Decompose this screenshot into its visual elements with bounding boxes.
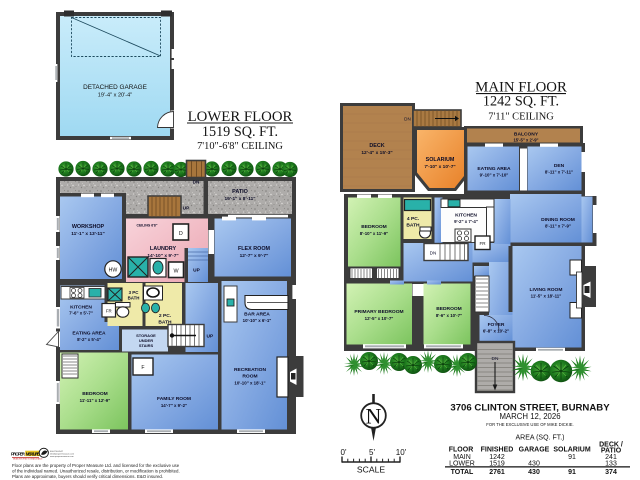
svg-text:PATIO: PATIO xyxy=(232,189,248,195)
svg-text:N: N xyxy=(366,404,382,429)
svg-text:FOYER: FOYER xyxy=(488,322,505,328)
svg-text:9'-10" x 7'-10": 9'-10" x 7'-10" xyxy=(480,173,509,178)
svg-text:8'-6" x 10'-7": 8'-6" x 10'-7" xyxy=(436,313,462,318)
svg-text:7'-6" x 5'-7": 7'-6" x 5'-7" xyxy=(69,311,93,316)
svg-text:KITCHEN: KITCHEN xyxy=(455,213,477,219)
svg-text:FAMILY ROOM: FAMILY ROOM xyxy=(157,396,191,402)
svg-text:DN: DN xyxy=(492,356,499,362)
svg-text:12'-4" x 15'-3": 12'-4" x 15'-3" xyxy=(361,150,392,156)
svg-text:1242 SQ. FT.: 1242 SQ. FT. xyxy=(483,94,559,110)
svg-text:10'-10" x 18'-1": 10'-10" x 18'-1" xyxy=(234,381,265,386)
svg-text:11'-1" x 13'-11": 11'-1" x 13'-11" xyxy=(71,231,105,237)
svg-text:9'-2" x 7'-4": 9'-2" x 7'-4" xyxy=(454,219,478,224)
svg-text:FLOOR: FLOOR xyxy=(449,446,474,453)
svg-text:WORKSHOP: WORKSHOP xyxy=(72,224,105,230)
svg-text:19'-4" x 20'-4": 19'-4" x 20'-4" xyxy=(98,93,132,99)
svg-text:12'-7" x 9'-7": 12'-7" x 9'-7" xyxy=(240,253,269,259)
svg-text:Plans are approximate, buyers: Plans are approximate, buyers should ver… xyxy=(12,474,163,479)
svg-text:MEASURE WHAT IS MEASURABLE: MEASURE WHAT IS MEASURABLE xyxy=(13,458,43,461)
svg-text:8'-10" x 11'-9": 8'-10" x 11'-9" xyxy=(360,231,388,236)
svg-text:F: F xyxy=(141,365,144,371)
svg-text:15'-5" x 2'-9": 15'-5" x 2'-9" xyxy=(513,138,538,143)
svg-text:BATH: BATH xyxy=(158,320,172,326)
svg-text:2761: 2761 xyxy=(489,469,505,476)
svg-text:6'-8" x 10'-2": 6'-8" x 10'-2" xyxy=(483,329,509,334)
svg-text:91: 91 xyxy=(568,454,576,461)
svg-text:430: 430 xyxy=(528,460,540,467)
svg-text:www.propermeasure.com: www.propermeasure.com xyxy=(50,455,74,458)
svg-text:DN: DN xyxy=(193,180,200,185)
svg-text:EATING AREA: EATING AREA xyxy=(477,166,511,172)
svg-text:ROOM: ROOM xyxy=(242,374,257,380)
svg-text:FR: FR xyxy=(479,241,486,246)
svg-text:HW: HW xyxy=(109,267,118,273)
svg-text:EATING AREA: EATING AREA xyxy=(72,331,106,337)
svg-text:SOLARIUM: SOLARIUM xyxy=(426,157,455,163)
svg-text:91: 91 xyxy=(568,469,576,476)
svg-text:CEILING 6'8": CEILING 6'8" xyxy=(137,224,158,228)
svg-text:UP: UP xyxy=(207,334,214,340)
svg-text:SOLARIUM: SOLARIUM xyxy=(553,446,591,453)
svg-text:3 PC: 3 PC xyxy=(129,290,140,295)
svg-text:FLEX ROOM: FLEX ROOM xyxy=(238,246,271,252)
svg-text:1519 SQ. FT.: 1519 SQ. FT. xyxy=(202,124,278,140)
svg-text:RECREATION: RECREATION xyxy=(234,367,266,373)
svg-text:10': 10' xyxy=(396,448,407,457)
svg-text:MEASURE: MEASURE xyxy=(26,452,40,457)
svg-text:LIVING ROOM: LIVING ROOM xyxy=(530,287,563,293)
svg-text:1519: 1519 xyxy=(489,460,505,467)
svg-text:BATH: BATH xyxy=(128,296,140,301)
svg-text:DECK: DECK xyxy=(369,143,384,149)
svg-text:14'-10" x 9'-7": 14'-10" x 9'-7" xyxy=(147,253,178,259)
svg-text:STAIRS: STAIRS xyxy=(139,343,154,348)
svg-text:Floor plans are the property o: Floor plans are the property of Proper M… xyxy=(12,463,180,468)
svg-text:8'-2" x 5'-4": 8'-2" x 5'-4" xyxy=(77,337,101,342)
svg-text:5': 5' xyxy=(369,448,375,457)
svg-text:0': 0' xyxy=(341,448,347,457)
svg-text:BEDROOM: BEDROOM xyxy=(436,306,462,312)
svg-text:BEDROOM: BEDROOM xyxy=(82,391,108,397)
svg-text:7'11" CEILING: 7'11" CEILING xyxy=(488,111,554,122)
svg-text:PROPER: PROPER xyxy=(11,452,26,457)
svg-text:TOTAL: TOTAL xyxy=(451,469,474,476)
svg-text:10'-10" x 6'-1": 10'-10" x 6'-1" xyxy=(243,318,272,323)
svg-text:UP: UP xyxy=(193,268,200,274)
svg-text:UP: UP xyxy=(183,206,190,212)
svg-text:FINISHED: FINISHED xyxy=(481,446,514,453)
svg-text:FOR THE EXCLUSIVE USE OF MIKE: FOR THE EXCLUSIVE USE OF MIKE DICKIE. xyxy=(486,422,573,427)
svg-text:DN: DN xyxy=(404,117,411,122)
svg-text:DN: DN xyxy=(430,251,437,256)
svg-text:2 PC.: 2 PC. xyxy=(159,313,172,319)
svg-text:DEN: DEN xyxy=(554,163,565,169)
svg-text:D: D xyxy=(179,231,183,237)
svg-text:of the individual named. Unaut: of the individual named. Unauthorized re… xyxy=(12,469,180,474)
svg-text:LOWER FLOOR: LOWER FLOOR xyxy=(188,109,293,125)
svg-text:19'-1" x 8'-11": 19'-1" x 8'-11" xyxy=(224,196,255,202)
svg-text:LOWER: LOWER xyxy=(449,460,475,467)
svg-text:BEDROOM: BEDROOM xyxy=(361,224,387,230)
svg-text:8'-11" x 7'-11": 8'-11" x 7'-11" xyxy=(545,170,573,175)
svg-text:DINING ROOM: DINING ROOM xyxy=(541,217,575,223)
svg-text:11'-5" x 18'-11": 11'-5" x 18'-11" xyxy=(531,294,562,299)
svg-text:GARAGE: GARAGE xyxy=(519,446,550,453)
svg-text:BAR AREA: BAR AREA xyxy=(244,312,270,318)
svg-text:430: 430 xyxy=(528,469,540,476)
svg-text:12'-5" x 10'-7": 12'-5" x 10'-7" xyxy=(365,316,394,321)
svg-text:7'-10" x 10'-7": 7'-10" x 10'-7" xyxy=(424,164,455,170)
svg-text:BATH: BATH xyxy=(406,223,420,229)
svg-text:FR: FR xyxy=(106,309,112,314)
svg-text:PRIMARY BEDROOM: PRIMARY BEDROOM xyxy=(354,309,403,315)
svg-text:DETACHED GARAGE: DETACHED GARAGE xyxy=(83,84,147,91)
svg-text:8'-11" x 7'-9": 8'-11" x 7'-9" xyxy=(545,224,571,229)
svg-text:4 PC.: 4 PC. xyxy=(407,216,420,222)
svg-text:LAUNDRY: LAUNDRY xyxy=(150,246,177,252)
svg-text:MARCH 12, 2026: MARCH 12, 2026 xyxy=(499,412,560,421)
svg-text:133: 133 xyxy=(605,460,617,467)
svg-text:SCALE: SCALE xyxy=(357,465,385,475)
svg-text:AREA (SQ. FT.): AREA (SQ. FT.) xyxy=(515,434,564,441)
svg-text:7'10"-6'8" CEILING: 7'10"-6'8" CEILING xyxy=(197,141,283,152)
svg-text:11'-11" x 12'-9": 11'-11" x 12'-9" xyxy=(80,398,111,403)
svg-text:14'-7" x 9'-2": 14'-7" x 9'-2" xyxy=(161,403,187,408)
svg-text:374: 374 xyxy=(605,469,617,476)
